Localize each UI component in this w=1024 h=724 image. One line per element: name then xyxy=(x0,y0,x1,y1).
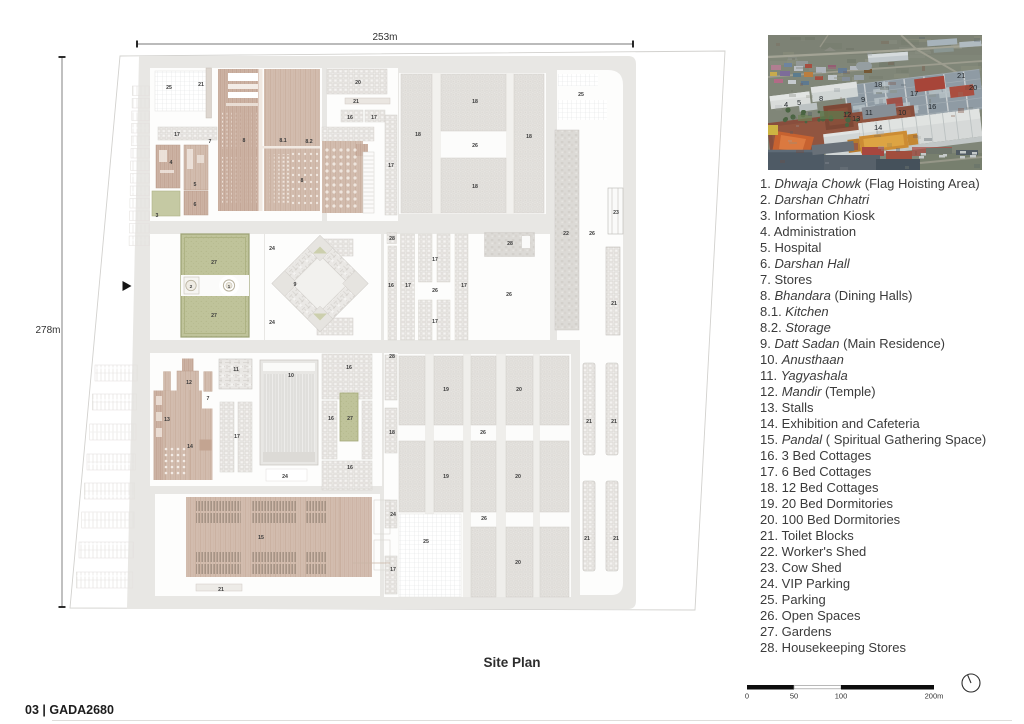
svg-text:3: 3 xyxy=(156,213,159,219)
svg-text:17: 17 xyxy=(390,567,396,573)
svg-text:10: 10 xyxy=(288,373,294,379)
svg-text:4: 4 xyxy=(784,100,788,109)
svg-text:5: 5 xyxy=(797,98,801,107)
svg-text:17: 17 xyxy=(432,257,438,263)
svg-text:21: 21 xyxy=(611,419,617,425)
svg-text:19: 19 xyxy=(443,387,449,393)
svg-text:21: 21 xyxy=(198,82,204,88)
svg-text:9: 9 xyxy=(861,95,865,104)
svg-text:24: 24 xyxy=(269,320,275,326)
svg-text:26: 26 xyxy=(432,288,438,294)
svg-text:16: 16 xyxy=(346,365,352,371)
svg-text:2: 2 xyxy=(190,284,193,290)
svg-text:17: 17 xyxy=(234,434,240,440)
svg-text:5: 5 xyxy=(194,182,197,188)
svg-text:26: 26 xyxy=(480,430,486,436)
svg-text:21: 21 xyxy=(218,587,224,593)
svg-text:8: 8 xyxy=(243,138,246,144)
svg-text:26: 26 xyxy=(506,292,512,298)
svg-text:4: 4 xyxy=(170,160,173,166)
svg-text:27: 27 xyxy=(347,416,353,422)
svg-text:10: 10 xyxy=(898,108,906,117)
svg-text:25: 25 xyxy=(578,92,584,98)
svg-text:11: 11 xyxy=(233,367,239,373)
svg-text:24: 24 xyxy=(390,512,396,518)
svg-text:200m: 200m xyxy=(925,692,944,701)
svg-text:8.1: 8.1 xyxy=(279,138,286,144)
svg-text:21: 21 xyxy=(957,71,965,80)
svg-text:21: 21 xyxy=(584,536,590,542)
svg-text:18: 18 xyxy=(472,99,478,105)
svg-text:16: 16 xyxy=(347,115,353,121)
svg-text:28: 28 xyxy=(389,236,395,242)
svg-text:100: 100 xyxy=(835,692,848,701)
svg-text:12: 12 xyxy=(843,110,851,119)
svg-text:15: 15 xyxy=(258,535,264,541)
svg-text:6: 6 xyxy=(194,202,197,208)
svg-text:12: 12 xyxy=(186,380,192,386)
svg-text:17: 17 xyxy=(405,283,411,289)
svg-text:13: 13 xyxy=(852,114,860,123)
svg-text:1: 1 xyxy=(228,284,231,290)
svg-text:20: 20 xyxy=(516,387,522,393)
svg-text:13: 13 xyxy=(164,417,170,423)
svg-text:14: 14 xyxy=(187,444,193,450)
svg-text:18: 18 xyxy=(472,184,478,190)
svg-text:18: 18 xyxy=(415,132,421,138)
svg-text:26: 26 xyxy=(589,231,595,237)
svg-text:17: 17 xyxy=(432,319,438,325)
svg-text:26: 26 xyxy=(481,516,487,522)
svg-text:8: 8 xyxy=(819,94,823,103)
svg-text:16: 16 xyxy=(347,465,353,471)
svg-text:18: 18 xyxy=(526,134,532,140)
svg-text:21: 21 xyxy=(353,99,359,105)
svg-text:7: 7 xyxy=(207,396,210,402)
svg-text:278m: 278m xyxy=(35,325,60,336)
svg-text:24: 24 xyxy=(282,474,288,480)
svg-text:253m: 253m xyxy=(372,32,397,43)
svg-text:28: 28 xyxy=(507,241,513,247)
svg-text:26: 26 xyxy=(472,143,478,149)
svg-text:8: 8 xyxy=(301,178,304,184)
svg-text:8.2: 8.2 xyxy=(305,139,312,145)
svg-text:17: 17 xyxy=(461,283,467,289)
svg-text:20: 20 xyxy=(515,560,521,566)
svg-text:16: 16 xyxy=(328,416,334,422)
svg-text:28: 28 xyxy=(389,354,395,360)
svg-text:17: 17 xyxy=(388,163,394,169)
svg-text:23: 23 xyxy=(613,210,619,216)
svg-text:14: 14 xyxy=(874,123,882,132)
svg-text:24: 24 xyxy=(269,246,275,252)
svg-text:25: 25 xyxy=(423,539,429,545)
svg-text:21: 21 xyxy=(613,536,619,542)
svg-text:18: 18 xyxy=(389,430,395,436)
svg-text:16: 16 xyxy=(928,102,936,111)
svg-text:20: 20 xyxy=(355,80,361,86)
svg-text:17: 17 xyxy=(174,132,180,138)
svg-text:0: 0 xyxy=(745,692,749,701)
svg-text:21: 21 xyxy=(611,301,617,307)
svg-text:9: 9 xyxy=(294,282,297,288)
svg-text:16: 16 xyxy=(388,283,394,289)
svg-text:17: 17 xyxy=(371,115,377,121)
svg-text:22: 22 xyxy=(563,231,569,237)
svg-text:25: 25 xyxy=(166,85,172,91)
svg-text:27: 27 xyxy=(211,260,217,266)
svg-text:20: 20 xyxy=(969,83,977,92)
svg-text:11: 11 xyxy=(865,108,873,117)
svg-text:17: 17 xyxy=(910,89,918,98)
svg-text:20: 20 xyxy=(515,474,521,480)
svg-text:19: 19 xyxy=(443,474,449,480)
svg-text:50: 50 xyxy=(790,692,798,701)
svg-text:7: 7 xyxy=(209,139,212,145)
svg-text:21: 21 xyxy=(586,419,592,425)
svg-text:27: 27 xyxy=(211,313,217,319)
svg-text:18: 18 xyxy=(874,80,882,89)
